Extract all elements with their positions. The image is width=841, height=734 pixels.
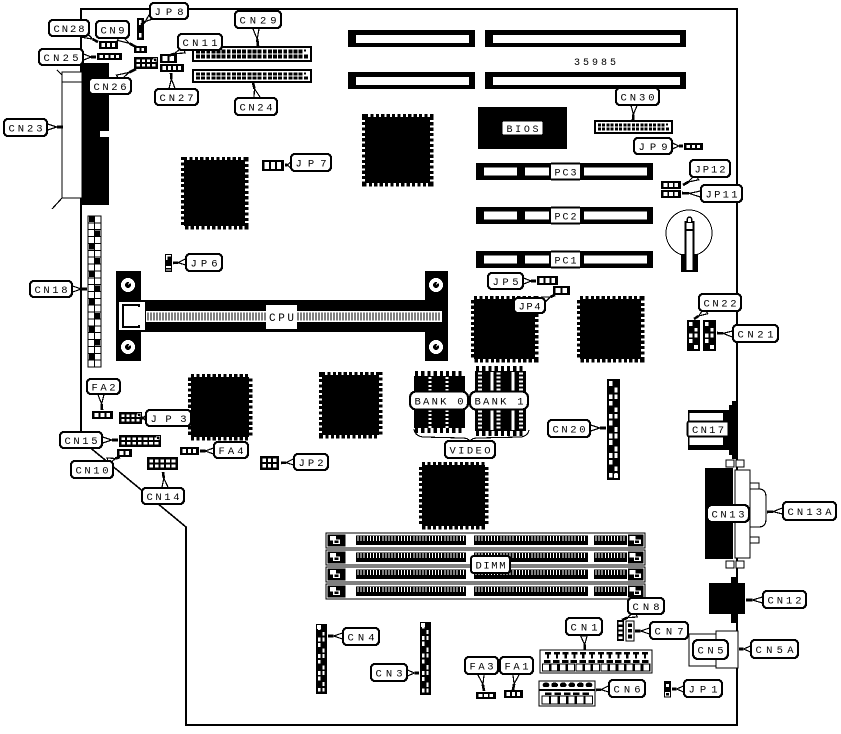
svg-text:JP1: JP1	[689, 684, 718, 696]
svg-text:FA4: FA4	[219, 446, 244, 458]
svg-text:CPU: CPU	[269, 313, 294, 325]
svg-text:CN7: CN7	[655, 626, 684, 638]
svg-text:VIDEO: VIDEO	[450, 445, 491, 457]
svg-text:JP12: JP12	[695, 164, 726, 176]
svg-text:JP7: JP7	[296, 158, 327, 170]
svg-text:JP4: JP4	[519, 301, 541, 313]
svg-text:CN9: CN9	[101, 25, 125, 37]
svg-text:FA3: FA3	[470, 661, 494, 673]
svg-text:CN5: CN5	[698, 645, 724, 657]
svg-text:CN1: CN1	[571, 622, 598, 634]
svg-text:JP8: JP8	[155, 7, 184, 19]
svg-text:CN28: CN28	[54, 24, 85, 36]
svg-text:DIMM: DIMM	[476, 560, 506, 572]
svg-text:CN6: CN6	[614, 684, 641, 696]
svg-text:PC1: PC1	[555, 256, 577, 267]
svg-text:FA2: FA2	[92, 382, 116, 394]
svg-text:JP6: JP6	[191, 258, 218, 270]
svg-text:CN4: CN4	[348, 632, 375, 644]
svg-text:FA1: FA1	[505, 661, 529, 673]
svg-text:35985: 35985	[574, 58, 619, 69]
svg-text:JP2: JP2	[299, 458, 324, 470]
svg-text:PC3: PC3	[555, 168, 577, 179]
svg-text:JP3: JP3	[151, 414, 187, 426]
svg-text:CN3: CN3	[376, 668, 403, 680]
svg-text:PC2: PC2	[555, 212, 577, 223]
svg-text:CN8: CN8	[633, 602, 660, 614]
svg-text:JP9: JP9	[639, 142, 668, 154]
svg-text:JP5: JP5	[493, 277, 519, 289]
